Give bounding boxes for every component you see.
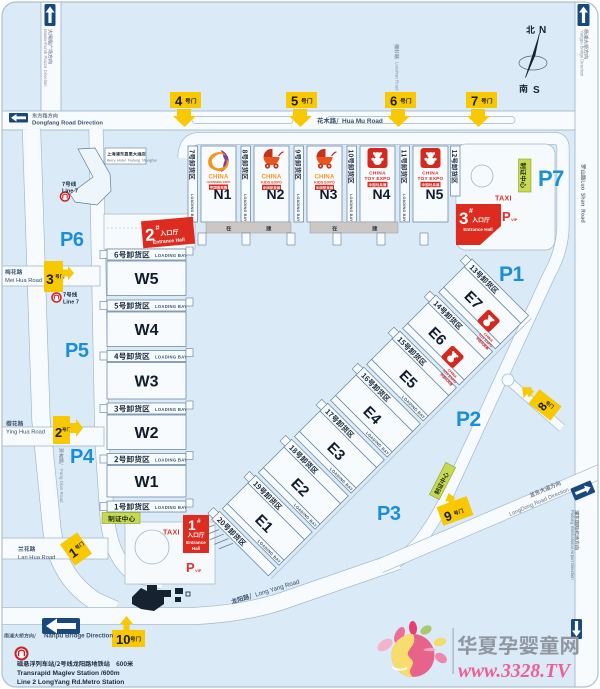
svg-text:Loushan Road: Loushan Road <box>395 62 400 91</box>
svg-text:Line 2 LongYang Rd.Metro Stati: Line 2 LongYang Rd.Metro Station <box>17 679 124 686</box>
svg-text:Maoto-thumb Piazza Direction: Maoto-thumb Piazza Direction <box>43 29 48 87</box>
svg-text:W1: W1 <box>135 474 159 491</box>
svg-text:Entrance Hall: Entrance Hall <box>463 227 492 232</box>
svg-text:N3: N3 <box>320 186 338 202</box>
svg-text:N2: N2 <box>267 186 285 202</box>
svg-text:Fang Dian Road: Fang Dian Road <box>59 469 64 503</box>
svg-text:TOY EXPO: TOY EXPO <box>418 176 444 182</box>
svg-text:LOADING BAY: LOADING BAY <box>155 354 187 359</box>
svg-text:W2: W2 <box>135 425 159 442</box>
svg-text:1: 1 <box>188 517 196 533</box>
svg-text:VIP: VIP <box>511 217 518 222</box>
svg-text:LOADING BAY: LOADING BAY <box>296 194 300 222</box>
svg-text:TAXI: TAXI <box>163 528 180 537</box>
svg-text:KIDS EXPO: KIDS EXPO <box>314 181 335 185</box>
svg-text:P: P <box>502 209 511 224</box>
svg-text:P: P <box>186 560 195 575</box>
svg-text:Dongfang Road Direction: Dongfang Road Direction <box>32 121 103 127</box>
svg-text:LOADING BAY: LOADING BAY <box>243 194 247 222</box>
svg-text:Ying Hua Road: Ying Hua Road <box>6 430 45 436</box>
svg-text:3: 3 <box>459 209 468 228</box>
svg-text:4: 4 <box>175 94 183 109</box>
svg-text:LOADING BAY: LOADING BAY <box>155 457 187 462</box>
svg-text:LOADING BAY: LOADING BAY <box>402 194 406 222</box>
svg-text:N: N <box>539 25 546 36</box>
svg-text:Transrapid Maglev Station /60: Transrapid Maglev Station /600m <box>17 670 120 677</box>
svg-text:W4: W4 <box>135 322 159 339</box>
svg-text:S: S <box>533 85 540 96</box>
svg-text:3: 3 <box>46 271 54 287</box>
svg-text:Line 7: Line 7 <box>62 189 78 195</box>
svg-text:Line 7: Line 7 <box>63 300 79 306</box>
svg-text:Yangpu Bridge Direction: Yangpu Bridge Direction <box>579 30 584 77</box>
svg-text:P6: P6 <box>60 229 84 251</box>
svg-text:#: # <box>197 518 201 525</box>
svg-text:Lan Hua Road: Lan Hua Road <box>18 555 55 561</box>
svg-text:CHINA: CHINA <box>369 171 386 177</box>
svg-text:LOADING BAY: LOADING BAY <box>349 194 353 222</box>
svg-text:LOADING BAY: LOADING BAY <box>155 505 187 510</box>
svg-text:LOADING BAY: LOADING BAY <box>155 407 187 412</box>
svg-text:#: # <box>155 225 160 232</box>
svg-text:Entrance: Entrance <box>186 540 206 545</box>
svg-text:P7: P7 <box>538 166 564 191</box>
svg-text:P5: P5 <box>65 340 89 362</box>
svg-text:W3: W3 <box>135 373 159 390</box>
svg-text:www.3328.TV: www.3328.TV <box>458 661 572 682</box>
svg-text:KIDS EXPO: KIDS EXPO <box>261 181 282 185</box>
svg-text:CHINA: CHINA <box>422 171 439 177</box>
svg-text:6: 6 <box>390 94 397 109</box>
svg-text:W5: W5 <box>135 271 159 288</box>
svg-text:7: 7 <box>471 94 478 109</box>
svg-text:LOADING BAY: LOADING BAY <box>155 304 187 309</box>
svg-text:Hall: Hall <box>192 546 200 551</box>
svg-text:Hua Mu Road: Hua Mu Road <box>342 118 383 125</box>
svg-text:#: # <box>469 208 473 215</box>
svg-text:P2: P2 <box>456 408 481 431</box>
svg-text:5: 5 <box>291 94 298 109</box>
svg-text:P4: P4 <box>70 446 95 468</box>
svg-text:2: 2 <box>55 425 62 440</box>
svg-text:Nanpu Bridge Direction: Nanpu Bridge Direction <box>44 633 113 640</box>
svg-text:Mei Hua Road: Mei Hua Road <box>5 278 42 284</box>
svg-text:VIP: VIP <box>195 568 202 573</box>
svg-text:Pudong International Airport D: Pudong International Airport Direction <box>570 510 575 580</box>
svg-text:LICENSING EXPO: LICENSING EXPO <box>207 180 232 184</box>
svg-text:TAXI: TAXI <box>495 194 512 203</box>
svg-text:LOADING BAY: LOADING BAY <box>155 253 187 258</box>
svg-text:N5: N5 <box>426 186 444 202</box>
svg-text:10: 10 <box>116 632 130 647</box>
svg-text:P1: P1 <box>499 263 525 286</box>
svg-text:P3: P3 <box>377 503 401 525</box>
svg-text:N1: N1 <box>214 186 232 202</box>
svg-text:N4: N4 <box>373 186 391 202</box>
svg-text:TOY EXPO: TOY EXPO <box>365 176 391 182</box>
